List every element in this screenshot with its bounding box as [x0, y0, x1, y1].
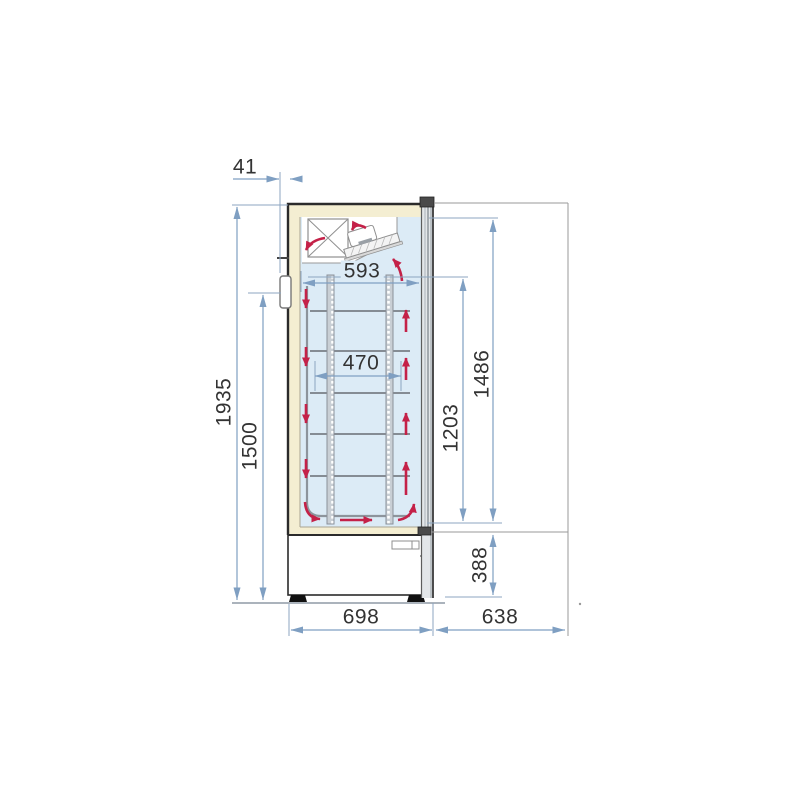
floor-mark: [579, 603, 581, 605]
bottom-hinge: [418, 527, 431, 535]
label-interior-depth: 593: [341, 261, 384, 282]
drawing-page: 41 593 470 1935 1500 1203 1486 388 698 6…: [0, 0, 800, 800]
base-section: [288, 535, 425, 602]
label-shelf-depth: 470: [340, 353, 383, 374]
label-total-height: 1935: [214, 378, 235, 427]
label-cabinet-depth: 698: [343, 607, 380, 628]
label-door-clearance: 638: [482, 607, 519, 628]
shelf-rack-front: [386, 275, 393, 524]
label-interior-height: 1486: [472, 350, 493, 399]
base-panel: [392, 541, 419, 549]
foot-rear: [289, 595, 307, 602]
label-shelf-zone-height: 1203: [441, 404, 462, 453]
top-hinge: [420, 197, 434, 207]
label-rear-clearance: 41: [233, 157, 257, 178]
label-base-height: 388: [470, 547, 491, 584]
label-hinge-height: 1500: [240, 422, 261, 471]
rear-hinge-bracket: [280, 276, 291, 308]
fan-unit: [308, 219, 348, 257]
shelf-rack-rear: [327, 275, 334, 524]
technical-drawing: [0, 0, 800, 800]
